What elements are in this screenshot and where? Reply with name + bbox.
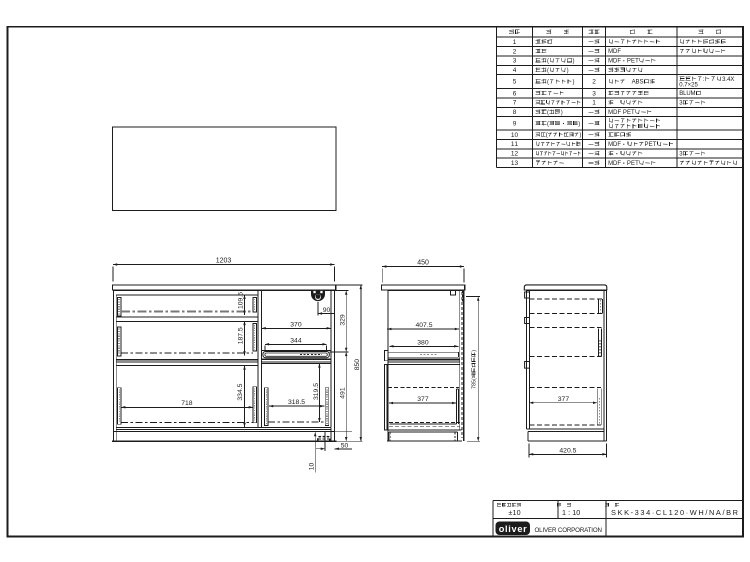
svg-text:785(: 785( [471, 378, 477, 389]
svg-text:491: 491 [339, 387, 346, 399]
svg-text:): ) [573, 59, 575, 65]
svg-text:329: 329 [339, 314, 346, 326]
svg-text:BLUM: BLUM [679, 91, 695, 97]
svg-text:PET: PET [645, 142, 657, 148]
svg-text:1 : 10: 1 : 10 [562, 508, 580, 517]
svg-text:1203: 1203 [216, 258, 232, 265]
svg-text:420.5: 420.5 [559, 448, 576, 455]
svg-text:oliver: oliver [499, 524, 527, 534]
svg-text:MDF: MDF [608, 161, 621, 167]
svg-text:1: 1 [513, 39, 517, 46]
svg-text:319.5: 319.5 [313, 383, 320, 400]
svg-text:): ) [561, 110, 563, 116]
svg-text:187.5: 187.5 [238, 327, 245, 344]
svg-text:13: 13 [511, 160, 519, 167]
svg-text:7: 7 [513, 100, 517, 107]
svg-text:318.5: 318.5 [288, 399, 305, 406]
svg-text:(: ( [547, 121, 549, 127]
svg-text:90: 90 [323, 307, 331, 314]
svg-text:1: 1 [592, 100, 596, 107]
svg-text:2: 2 [513, 48, 517, 55]
svg-text:3: 3 [513, 58, 517, 65]
svg-text:377: 377 [417, 396, 429, 403]
svg-text:718: 718 [181, 400, 193, 407]
svg-text:): ) [578, 121, 580, 127]
svg-text:): ) [579, 133, 581, 139]
svg-text:3: 3 [592, 90, 596, 97]
svg-text:(: ( [547, 68, 549, 74]
svg-text:0.7×25: 0.7×25 [679, 83, 698, 89]
svg-text:850: 850 [354, 359, 361, 371]
svg-text:407.5: 407.5 [416, 322, 433, 329]
svg-text:370: 370 [290, 321, 302, 328]
svg-text:5: 5 [513, 79, 517, 86]
svg-text:334.5: 334.5 [237, 383, 244, 400]
svg-text:SKK-334·CL120·WH/NA/BR: SKK-334·CL120·WH/NA/BR [611, 508, 738, 517]
svg-text:2: 2 [592, 79, 596, 86]
svg-text:3.4X: 3.4X [722, 77, 734, 83]
svg-text:6: 6 [513, 90, 517, 97]
svg-text:377: 377 [558, 396, 570, 403]
svg-text:OLIVER CORPORATION: OLIVER CORPORATION [535, 527, 603, 534]
svg-text:11: 11 [511, 141, 519, 148]
svg-text:50: 50 [341, 443, 349, 450]
svg-text:450: 450 [417, 260, 429, 267]
svg-text:4: 4 [513, 67, 517, 74]
svg-text:): ) [567, 68, 569, 74]
svg-text:MDF: MDF [608, 59, 621, 65]
svg-text:(: ( [547, 110, 549, 116]
svg-text:(: ( [547, 59, 549, 65]
svg-text:PET: PET [627, 161, 639, 167]
svg-text:10: 10 [511, 132, 519, 139]
svg-text:MDF PET: MDF PET [608, 110, 635, 116]
svg-text:(: ( [547, 80, 549, 86]
svg-text:(: ( [546, 133, 548, 139]
svg-text:): ) [471, 350, 477, 352]
svg-text:MDF: MDF [608, 49, 621, 55]
svg-text:9: 9 [513, 121, 517, 128]
svg-text:8: 8 [513, 109, 517, 116]
svg-text:109.5: 109.5 [238, 292, 245, 309]
svg-text:MDF: MDF [608, 142, 621, 148]
svg-text:12: 12 [511, 151, 519, 158]
svg-text:ABS: ABS [632, 80, 644, 86]
svg-text:): ) [573, 80, 575, 86]
svg-text:10: 10 [309, 462, 316, 470]
svg-text:344: 344 [290, 337, 302, 344]
svg-text:PET: PET [627, 59, 639, 65]
svg-text:±10: ±10 [508, 508, 520, 517]
svg-text:380: 380 [417, 339, 429, 346]
